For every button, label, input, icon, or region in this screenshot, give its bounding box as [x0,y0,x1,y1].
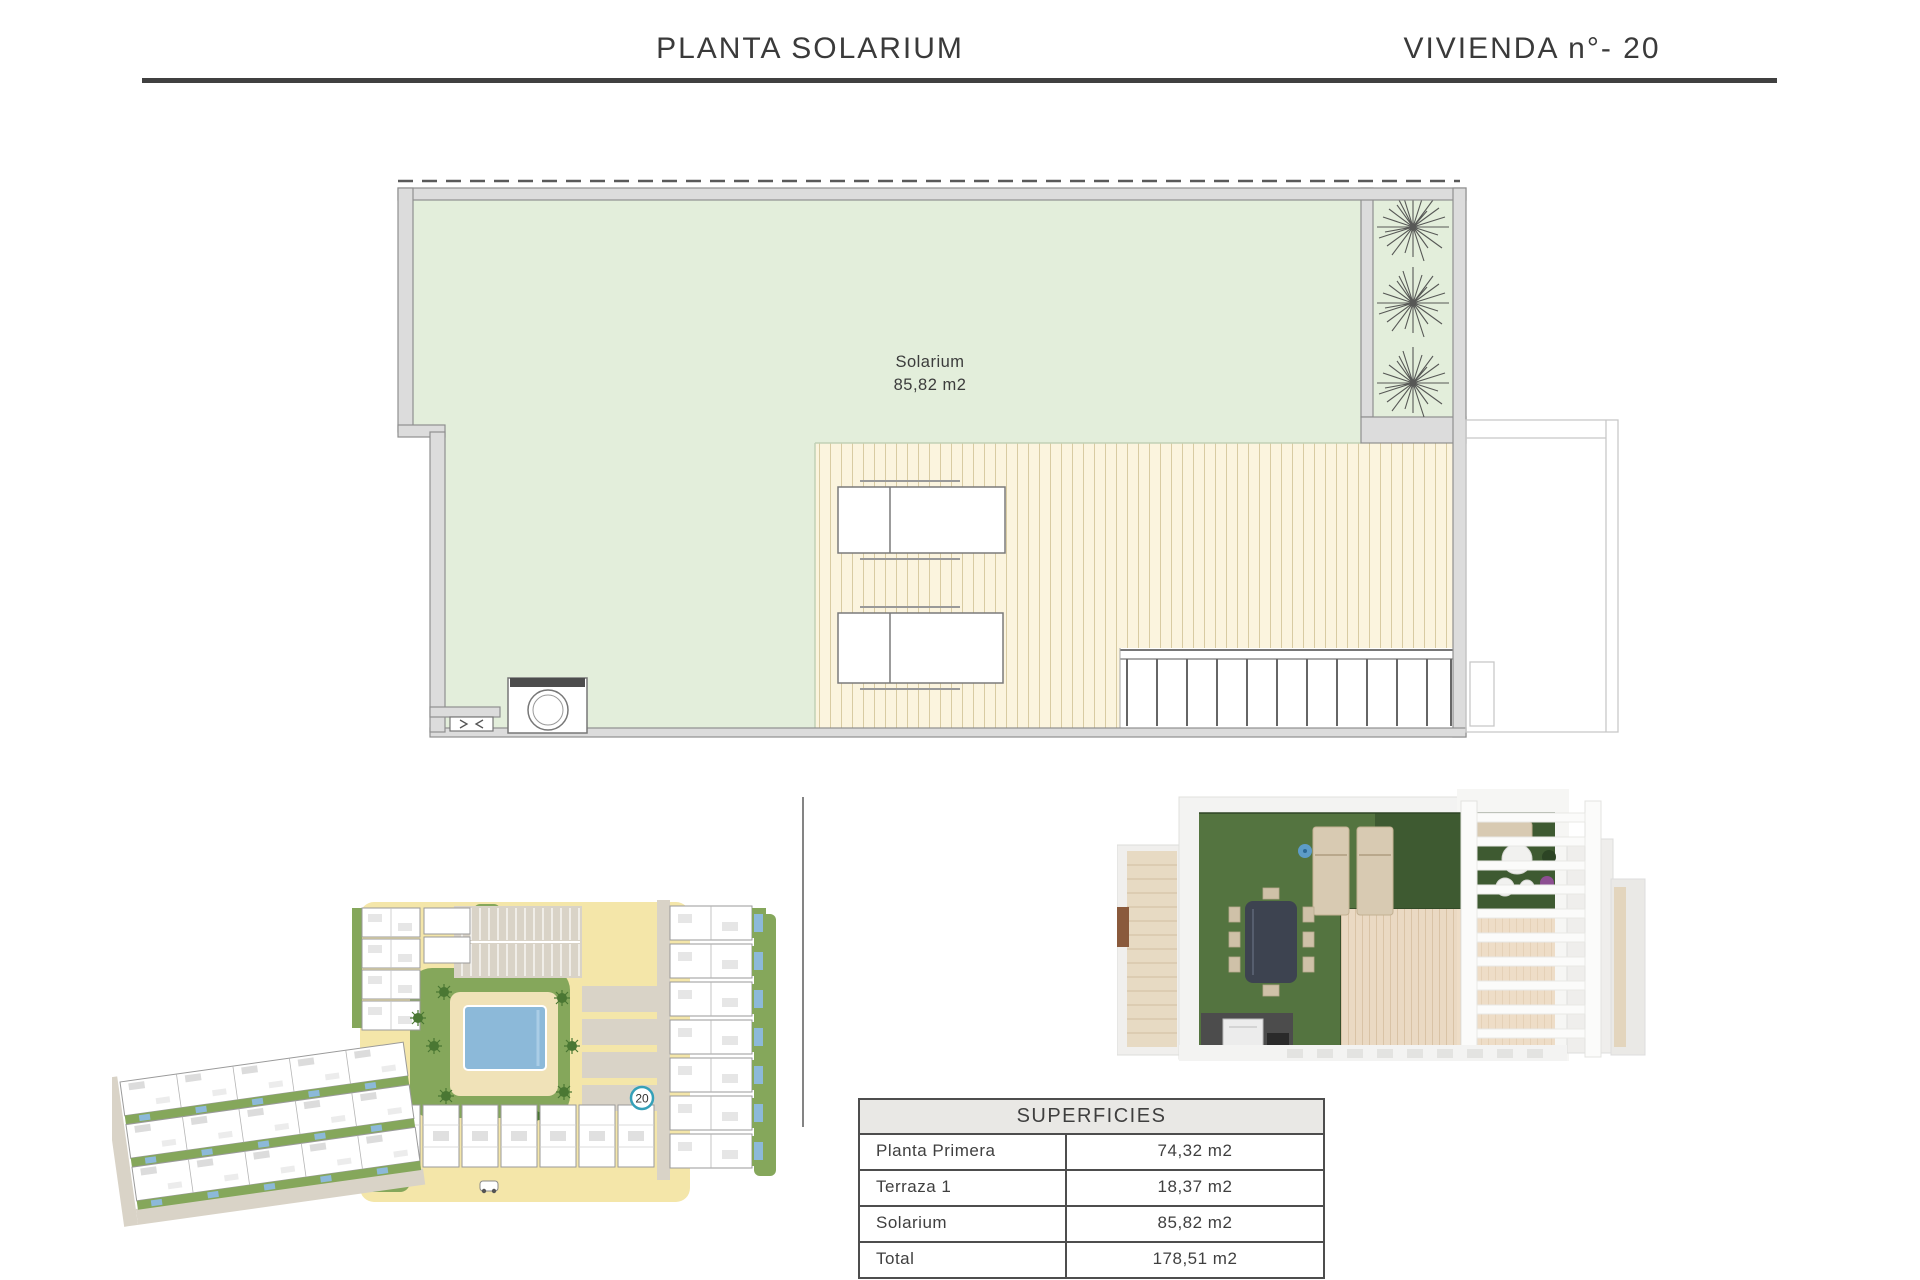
row-label: Planta Primera [860,1135,1067,1169]
washing-machine-icon [508,678,587,733]
room-area: 85,82 m2 [894,376,967,394]
row-value: 85,82 m2 [1067,1207,1323,1241]
solarium-floor-plan: Solarium 85,82 m2 [390,170,1630,750]
planter [1361,188,1466,443]
site-units-south [384,1105,654,1167]
unit-number-title: VIVIENDA n°- 20 [1377,32,1687,66]
row-value: 178,51 m2 [1067,1243,1323,1277]
table-row: Planta Primera 74,32 m2 [858,1135,1325,1171]
svg-text:20: 20 [635,1092,649,1106]
table-row: Total 178,51 m2 [858,1243,1325,1279]
room-label: Solarium [895,353,964,371]
neighbor-outline [1466,420,1618,732]
site-plan: 20 [112,900,797,1235]
sun-lounger [838,607,1003,689]
row-label: Terraza 1 [860,1171,1067,1205]
page: { "header": { "title_left": "PLANTA SOLA… [0,0,1920,1280]
table-row: Terraza 1 18,37 m2 [858,1171,1325,1207]
sun-lounger [838,481,1005,559]
header-rule [142,78,1777,83]
render-parapet [1179,1045,1567,1061]
vent-icon [450,717,493,731]
page-title: PLANTA SOLARIUM [640,32,980,66]
row-label: Solarium [860,1207,1067,1241]
areas-table-title: SUPERFICIES [858,1098,1325,1135]
railing [1120,648,1453,728]
areas-table: SUPERFICIES Planta Primera 74,32 m2 Terr… [858,1098,1325,1279]
site-units-east [670,906,766,1168]
row-value: 74,32 m2 [1067,1135,1323,1169]
table-row: Solarium 85,82 m2 [858,1207,1325,1243]
section-divider [802,797,804,1127]
car-icon [480,1181,498,1193]
unit-20-marker: 20 [631,1087,653,1109]
row-value: 18,37 m2 [1067,1171,1323,1205]
row-label: Total [860,1243,1067,1277]
terrace-3d-render [1117,787,1665,1065]
render-neighbor-walls [1567,839,1645,1055]
